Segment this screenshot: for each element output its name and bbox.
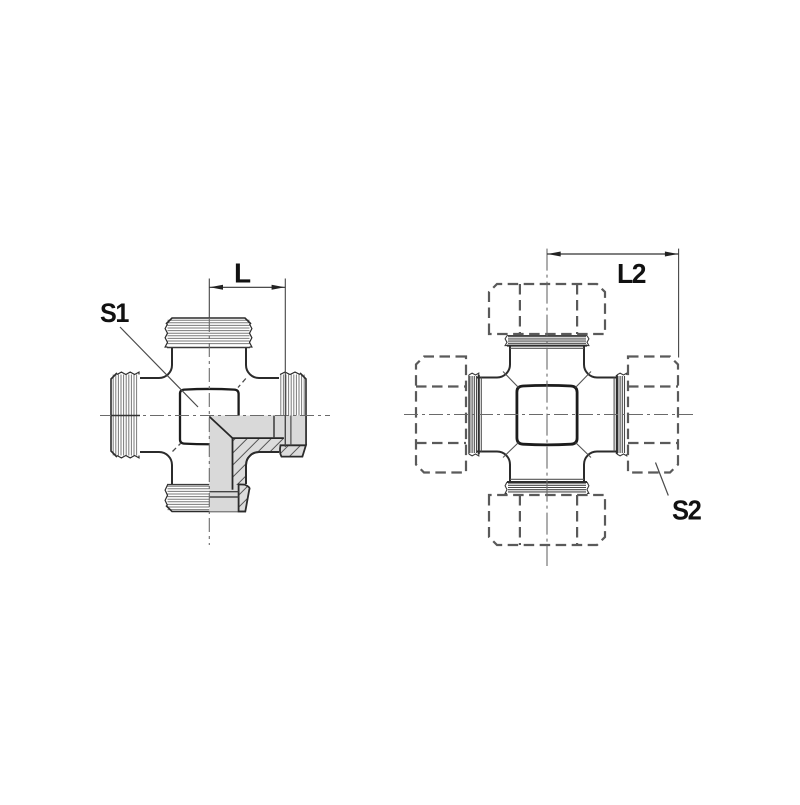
svg-text:L: L (234, 258, 251, 289)
svg-text:S2: S2 (672, 495, 701, 526)
svg-text:L2: L2 (617, 258, 646, 289)
svg-text:S1: S1 (100, 298, 129, 328)
